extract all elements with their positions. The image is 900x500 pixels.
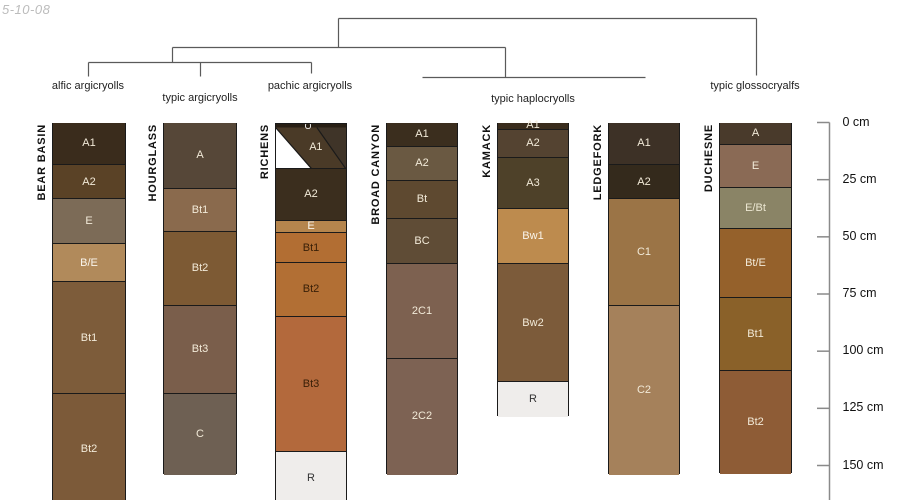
pedon-column: A1A2A3Bw1Bw2R — [497, 123, 569, 417]
depth-tick-label: 150 cm — [843, 458, 884, 472]
horizon-label: E — [307, 221, 314, 232]
richens-top-zone: OA1 — [276, 124, 346, 169]
depth-tick-label: 100 cm — [843, 343, 884, 357]
horizon-band: Bt2 — [276, 262, 346, 317]
horizon-label: A2 — [526, 138, 539, 149]
horizon-label: Bt2 — [81, 444, 98, 455]
horizon-band: BC — [387, 218, 457, 264]
horizon-label: A2 — [82, 177, 95, 188]
horizon-band: Bt1 — [720, 297, 791, 371]
horizon-label: 2C1 — [412, 306, 432, 317]
horizon-band: Bt3 — [164, 305, 236, 394]
pedon-column: OA1A2EBt1Bt2Bt3R — [275, 123, 347, 500]
pedon-column: ABt1Bt2Bt3C — [163, 123, 237, 474]
horizon-band: Bt1 — [276, 232, 346, 263]
soil-profile-figure: 5-10-08 alfic argicryollstypic argicryol… — [0, 0, 900, 500]
horizon-label: C2 — [637, 385, 651, 396]
horizon-label: Bt2 — [747, 417, 764, 428]
horizon-label: Bt1 — [303, 243, 320, 254]
pedon-name: BROAD CANYON — [371, 124, 382, 225]
o-horizon-label: O — [305, 124, 312, 131]
depth-tick-label: 0 cm — [843, 115, 870, 129]
horizon-band: A2 — [498, 129, 568, 158]
horizon-band: A2 — [609, 164, 679, 199]
horizon-label: Bt1 — [747, 329, 764, 340]
horizon-label: Bw2 — [522, 318, 543, 329]
pedon-column: AEE/BtBt/EBt1Bt2 — [719, 123, 792, 474]
pedon-column: A1A2BtBC2C12C2 — [386, 123, 458, 474]
horizon-band: B/E — [53, 243, 125, 282]
date-label: 5-10-08 — [2, 2, 50, 17]
class-label: typic glossocryalfs — [710, 80, 799, 92]
horizon-label: R — [529, 394, 537, 405]
pedon-column: A1A2EB/EBt1Bt2 — [52, 123, 126, 500]
horizon-label: R — [307, 473, 315, 484]
horizon-label: Bt3 — [192, 344, 209, 355]
horizon-band: A2 — [53, 164, 125, 199]
horizon-label: E — [85, 216, 92, 227]
horizon-band: A1 — [53, 123, 125, 164]
pedon-name: BEAR BASIN — [37, 124, 48, 200]
horizon-label: E/Bt — [745, 203, 766, 214]
pedon-name: HOURGLASS — [148, 124, 159, 201]
horizon-label: A — [196, 150, 203, 161]
horizon-band: 2C1 — [387, 263, 457, 359]
horizon-label: Bt2 — [303, 284, 320, 295]
horizon-band: A1 — [387, 123, 457, 147]
horizon-band: Bt1 — [164, 188, 236, 232]
horizon-band: Bt/E — [720, 228, 791, 298]
horizon-band: C1 — [609, 198, 679, 306]
depth-tick-label: 25 cm — [843, 172, 877, 186]
horizon-band: C2 — [609, 305, 679, 475]
horizon-band: Bt2 — [53, 393, 125, 500]
horizon-band: R — [498, 381, 568, 417]
depth-tick-label: 125 cm — [843, 400, 884, 414]
horizon-band: Bw2 — [498, 263, 568, 382]
class-label: alfic argicryolls — [52, 80, 124, 92]
horizon-band: E — [720, 144, 791, 188]
horizon-label: Bt2 — [192, 263, 209, 274]
horizon-label: Bt3 — [303, 379, 320, 390]
horizon-band: Bt — [387, 180, 457, 219]
horizon-label: A1 — [637, 138, 650, 149]
horizon-band: E — [53, 198, 125, 244]
pedon-name: LEDGEFORK — [593, 124, 604, 200]
class-label: typic haplocryolls — [491, 93, 575, 105]
horizon-band: Bt1 — [53, 281, 125, 394]
horizon-band: A3 — [498, 157, 568, 209]
horizon-label: 2C2 — [412, 411, 432, 422]
horizon-label: Bw1 — [522, 231, 543, 242]
horizon-label: Bt1 — [81, 333, 98, 344]
class-label: typic argicryolls — [162, 92, 237, 104]
horizon-label: A2 — [415, 158, 428, 169]
horizon-band: A — [720, 123, 791, 145]
class-label: pachic argicryolls — [268, 80, 352, 92]
horizon-band: Bw1 — [498, 208, 568, 264]
pedon-name: DUCHESNE — [704, 124, 715, 192]
horizon-label: A1 — [415, 129, 428, 140]
horizon-band: A2 — [276, 168, 346, 221]
a1-horizon-label: A1 — [309, 140, 322, 152]
pedon-name: KAMACK — [482, 124, 493, 178]
horizon-label: Bt — [417, 194, 427, 205]
horizon-band: Bt2 — [720, 370, 791, 474]
horizon-band: E/Bt — [720, 187, 791, 229]
horizon-band: C — [164, 393, 236, 475]
horizon-label: Bt/E — [745, 258, 766, 269]
horizon-label: A2 — [637, 177, 650, 188]
pedon-column: A1A2C1C2 — [608, 123, 680, 474]
pedon-name: RICHENS — [260, 124, 271, 179]
horizon-band: A2 — [387, 146, 457, 181]
horizon-label: E — [752, 161, 759, 172]
horizon-label: C — [196, 429, 204, 440]
horizon-label: C1 — [637, 247, 651, 258]
horizon-band: Bt2 — [164, 231, 236, 306]
horizon-band: R — [276, 451, 346, 500]
depth-tick-label: 75 cm — [843, 286, 877, 300]
horizon-label: Bt1 — [192, 205, 209, 216]
depth-tick-label: 50 cm — [843, 229, 877, 243]
horizon-label: A3 — [526, 178, 539, 189]
horizon-label: A1 — [82, 138, 95, 149]
horizon-label: B/E — [80, 258, 98, 269]
horizon-band: Bt3 — [276, 316, 346, 452]
horizon-label: BC — [414, 236, 429, 247]
horizon-label: A — [752, 128, 759, 139]
horizon-band: A1 — [609, 123, 679, 164]
horizon-label: A2 — [304, 189, 317, 200]
horizon-band: A — [164, 123, 236, 188]
horizon-band: 2C2 — [387, 358, 457, 475]
